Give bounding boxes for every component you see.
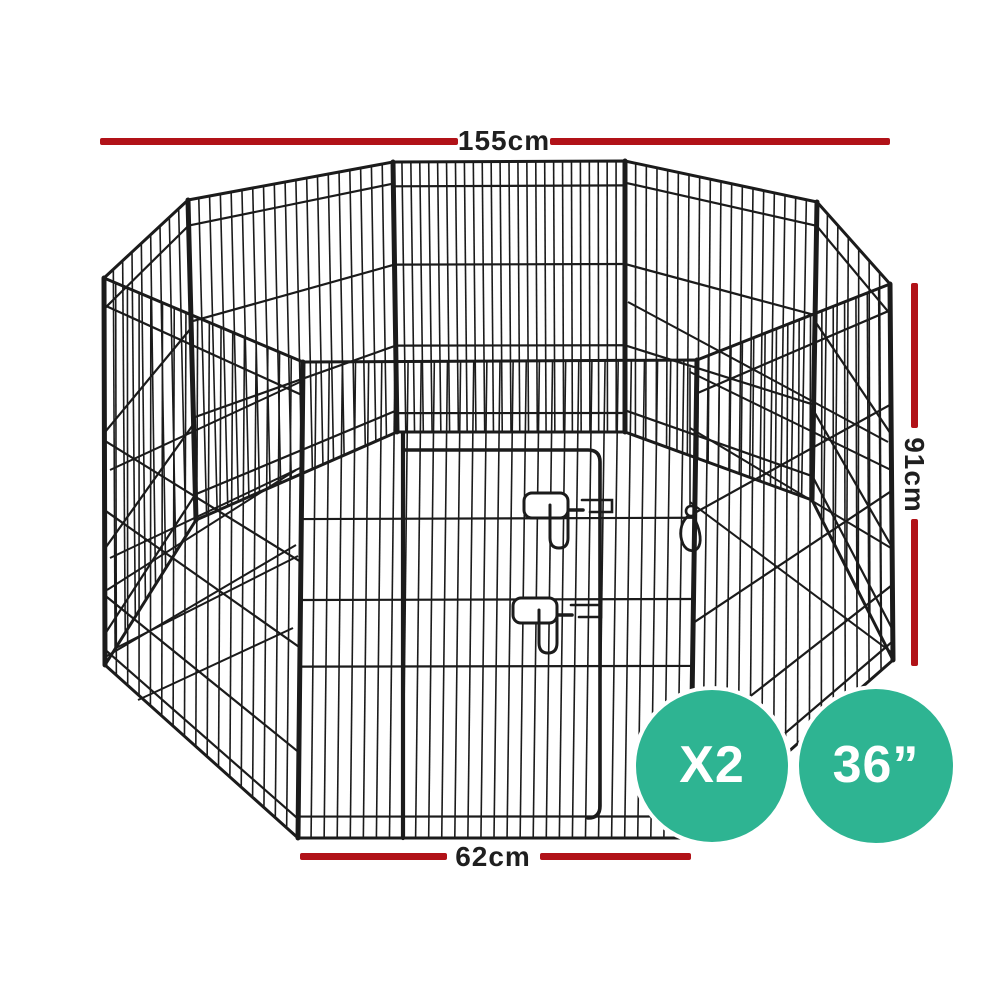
height-dimension-line-top: [911, 283, 918, 428]
size-badge-label: 36”: [833, 735, 920, 795]
width-dimension-line-right: [550, 138, 890, 145]
panel-width-dimension-label: 62cm: [455, 841, 531, 873]
height-dimension-line-bottom: [911, 519, 918, 666]
panel-width-dimension-line-left: [300, 853, 447, 860]
quantity-badge: X2: [632, 686, 792, 846]
product-dimension-image: 155cm 91cm 62cm X2 36”: [0, 0, 1000, 1000]
width-dimension-line-left: [100, 138, 458, 145]
quantity-badge-label: X2: [679, 735, 745, 795]
size-badge: 36”: [795, 685, 957, 847]
panel-width-dimension-line-right: [540, 853, 691, 860]
width-dimension-label: 155cm: [458, 125, 550, 157]
height-dimension-label: 91cm: [898, 437, 930, 513]
